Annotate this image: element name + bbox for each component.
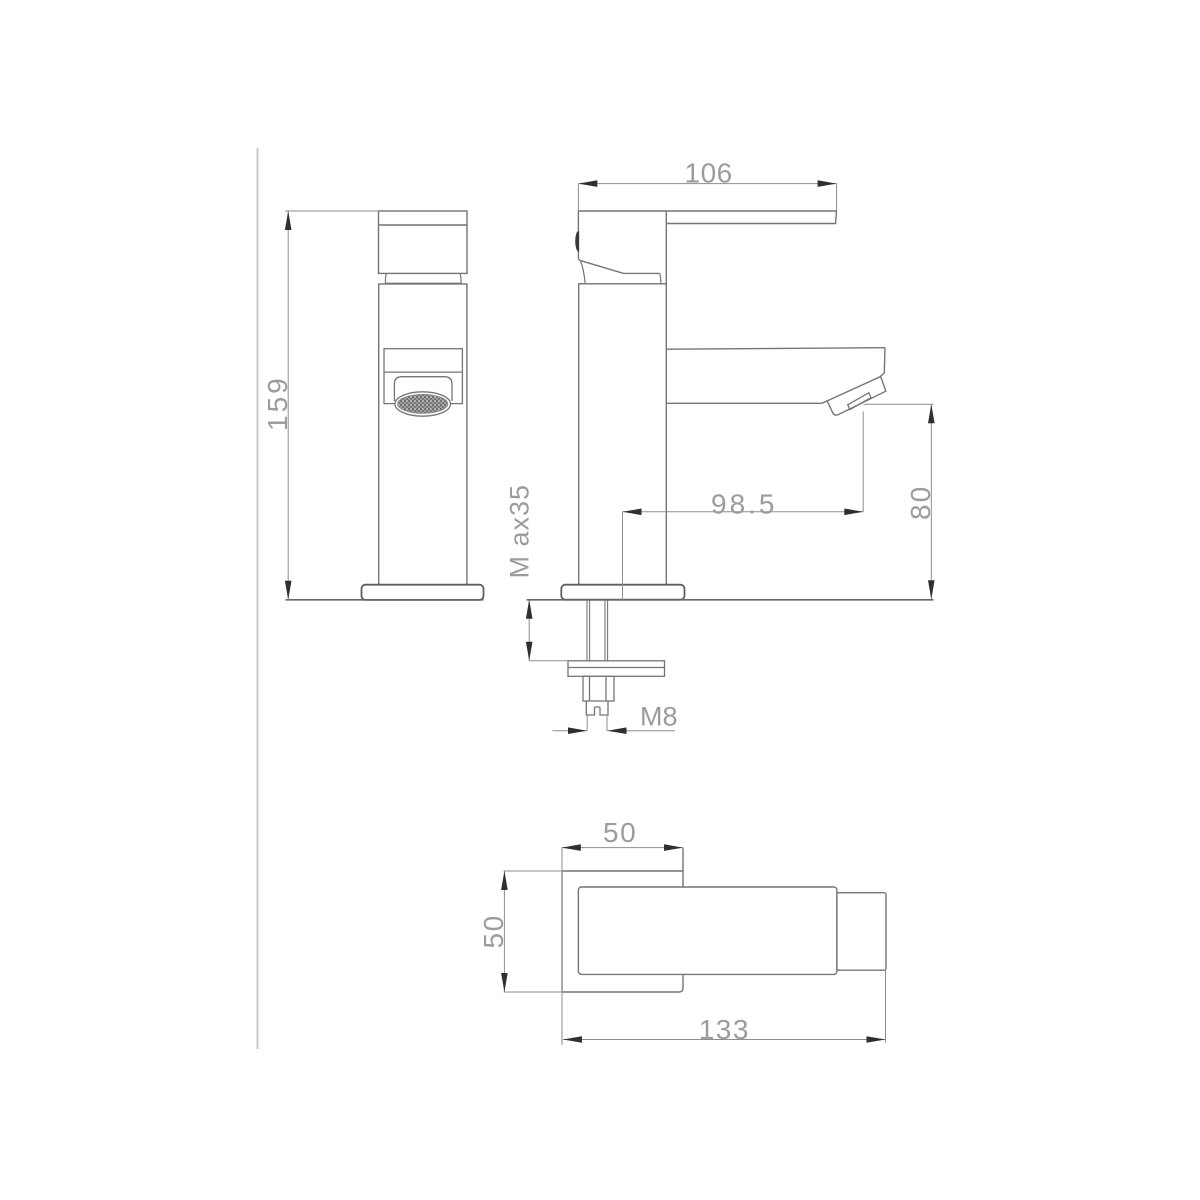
svg-text:80: 80: [905, 485, 936, 520]
svg-text:50: 50: [478, 914, 509, 948]
svg-text:133: 133: [699, 1014, 750, 1045]
svg-text:98.5: 98.5: [711, 489, 778, 520]
svg-text:159: 159: [262, 375, 293, 431]
svg-text:50: 50: [603, 817, 637, 848]
svg-text:106: 106: [685, 158, 733, 189]
svg-text:M8: M8: [640, 702, 678, 732]
svg-text:M ax35: M ax35: [505, 484, 535, 579]
